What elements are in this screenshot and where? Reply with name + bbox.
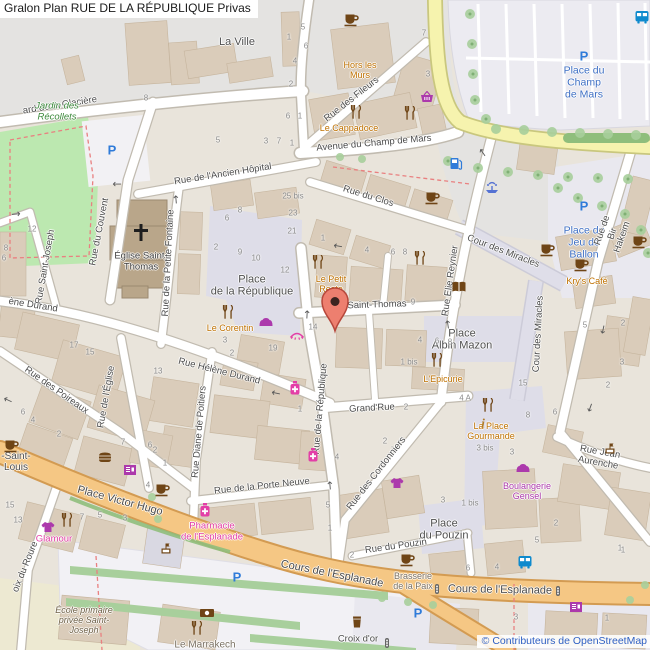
map-attribution[interactable]: © Contributeurs de OpenStreetMap	[477, 635, 650, 648]
map-canvas[interactable]: ard de la GlacièreLa VilleRue des Fileur…	[0, 0, 650, 650]
map-base-layer	[0, 0, 650, 650]
attribution-text[interactable]: © Contributeurs de OpenStreetMap	[482, 635, 647, 647]
map-title: Gralon Plan RUE DE LA RÉPUBLIQUE Privas	[0, 0, 258, 18]
page-title: Gralon Plan RUE DE LA RÉPUBLIQUE Privas	[4, 1, 251, 15]
